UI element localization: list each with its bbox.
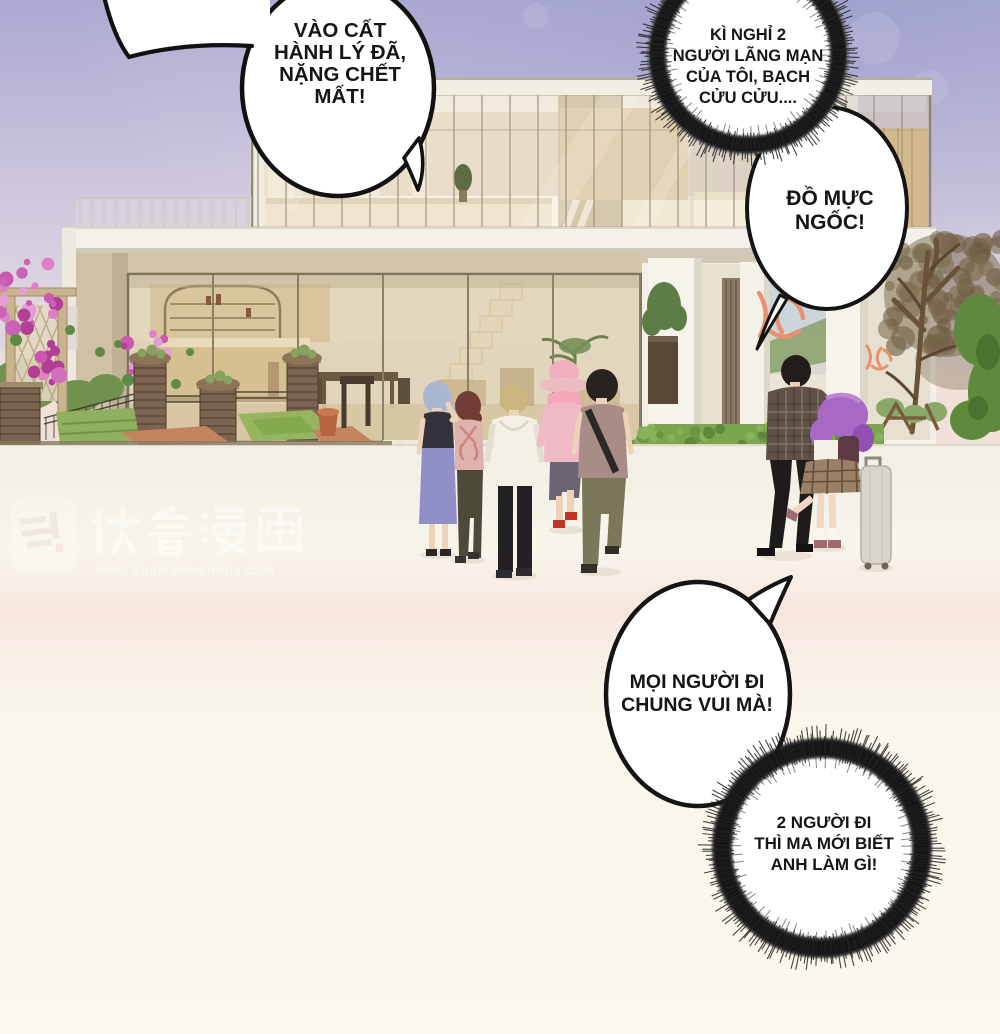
svg-text:CỦA TÔI, BẠCH: CỦA TÔI, BẠCH (686, 67, 810, 86)
svg-text:NGỐC!: NGỐC! (795, 210, 865, 234)
svg-text:ANH LÀM GÌ!: ANH LÀM GÌ! (771, 855, 878, 874)
svg-text:CỬU CỬU....: CỬU CỬU.... (699, 88, 797, 107)
svg-text:NGƯỜI LÃNG MẠN: NGƯỜI LÃNG MẠN (673, 45, 824, 65)
svg-text:THÌ MA MỚI BIẾT: THÌ MA MỚI BIẾT (754, 834, 894, 853)
svg-text:HÀNH LÝ ĐÃ,: HÀNH LÝ ĐÃ, (274, 40, 406, 64)
svg-text:MẤT!: MẤT! (314, 85, 365, 108)
svg-text:CHUNG VUI MÀ!: CHUNG VUI MÀ! (621, 693, 773, 716)
svg-text:MỌI NGƯỜI ĐI: MỌI NGƯỜI ĐI (630, 669, 765, 693)
svg-text:2 NGƯỜI ĐI: 2 NGƯỜI ĐI (777, 813, 872, 832)
svg-text:NẶNG CHẾT: NẶNG CHẾT (279, 63, 401, 86)
svg-text:www.kuaikanmanhua.com: www.kuaikanmanhua.com (95, 563, 275, 578)
svg-text:ĐỒ MỰC: ĐỒ MỰC (786, 186, 873, 210)
svg-text:KÌ NGHỈ 2: KÌ NGHỈ 2 (710, 25, 786, 44)
svg-text:VÀO CẤT: VÀO CẤT (294, 19, 387, 42)
